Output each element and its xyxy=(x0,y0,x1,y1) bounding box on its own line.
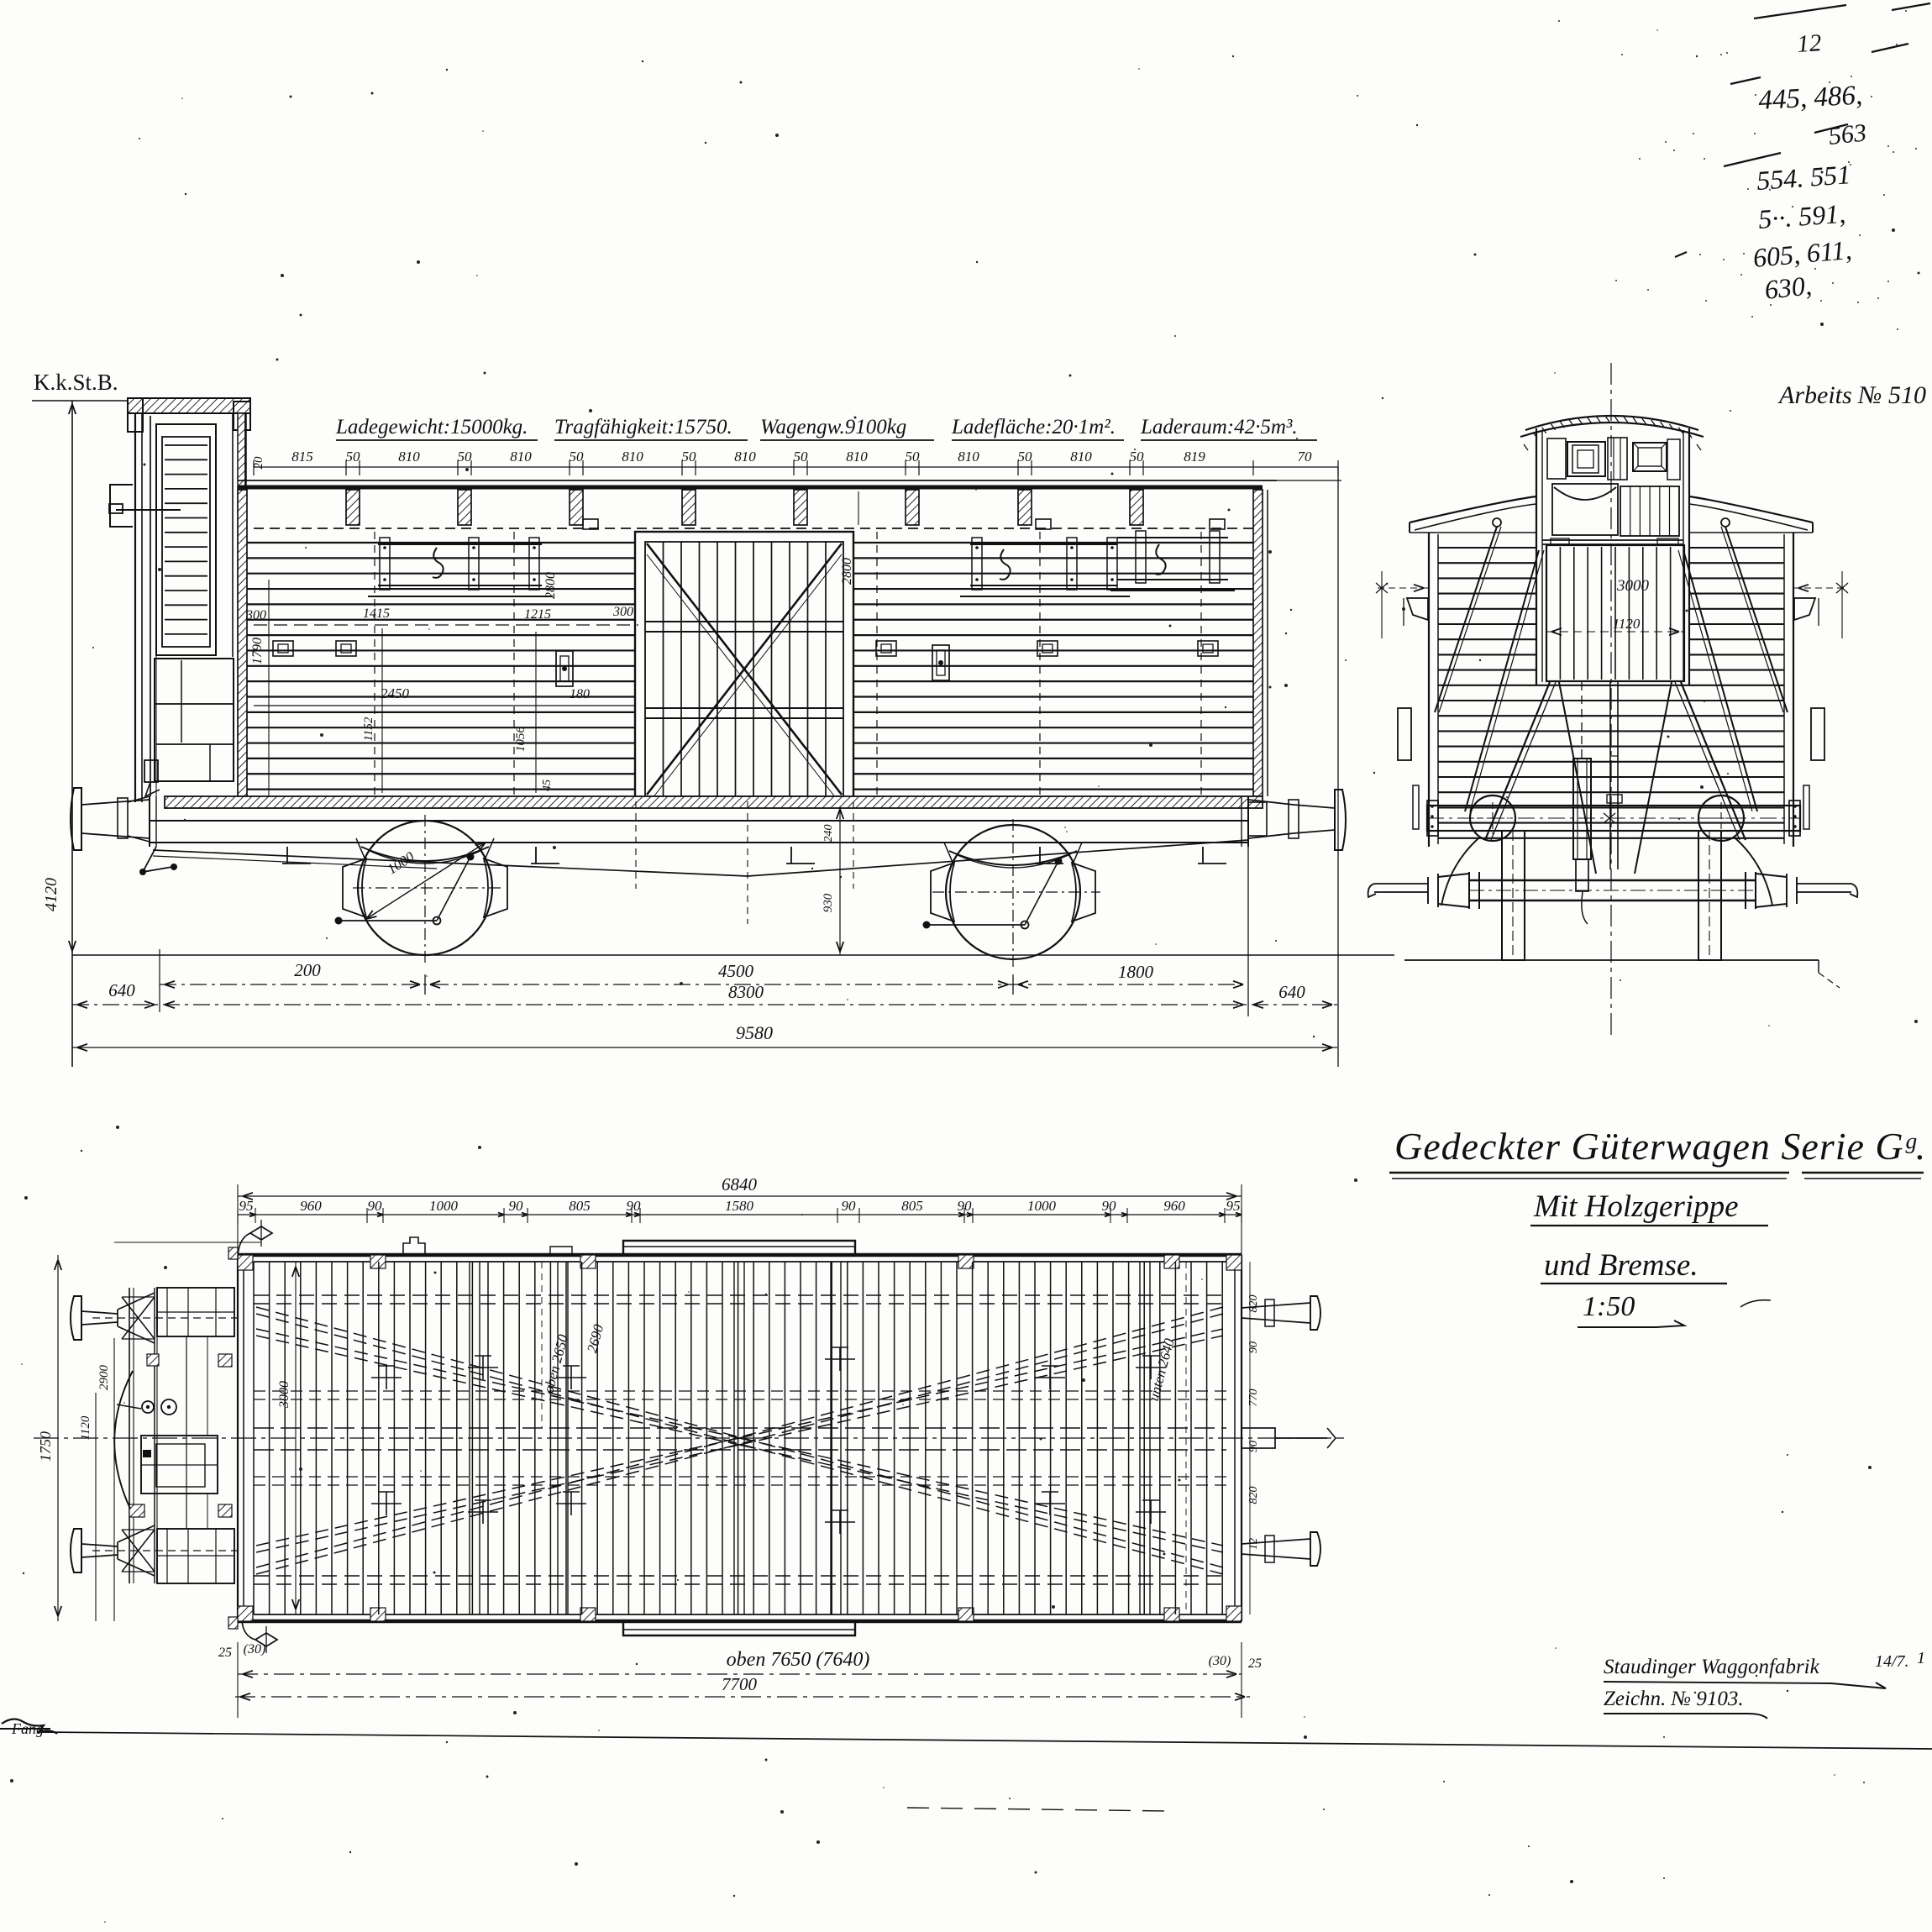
svg-text:300: 300 xyxy=(612,605,633,619)
svg-text:K.k.St.B.: K.k.St.B. xyxy=(34,370,118,395)
svg-text:50: 50 xyxy=(906,449,921,465)
svg-text:7700: 7700 xyxy=(722,1674,758,1694)
svg-text:180: 180 xyxy=(570,687,590,701)
svg-text:1152: 1152 xyxy=(362,717,375,741)
svg-text:95: 95 xyxy=(1226,1198,1241,1214)
svg-text:2800: 2800 xyxy=(543,572,558,599)
svg-text:300: 300 xyxy=(245,608,266,622)
svg-text:1: 1 xyxy=(1917,1649,1925,1667)
svg-text:2900: 2900 xyxy=(97,1365,111,1391)
svg-text:3000: 3000 xyxy=(1616,577,1650,595)
svg-text:90: 90 xyxy=(842,1198,857,1214)
svg-text:Wagengw.9100kg: Wagengw.9100kg xyxy=(760,416,906,438)
svg-text:810: 810 xyxy=(958,449,979,465)
svg-text:1:50: 1:50 xyxy=(1583,1291,1635,1322)
svg-text:3000: 3000 xyxy=(277,1381,291,1409)
svg-text:1750: 1750 xyxy=(37,1431,54,1462)
svg-text:8300: 8300 xyxy=(728,982,764,1002)
svg-text:810: 810 xyxy=(1070,449,1092,465)
svg-text:200: 200 xyxy=(294,960,321,980)
svg-text:1215: 1215 xyxy=(524,607,551,622)
svg-text:Ladefläche:20·1m².: Ladefläche:20·1m². xyxy=(951,416,1116,438)
svg-text:90: 90 xyxy=(627,1198,642,1214)
svg-text:Tragfähigkeit:15750.: Tragfähigkeit:15750. xyxy=(554,416,732,438)
svg-text:und Bremse.: und Bremse. xyxy=(1544,1248,1698,1283)
svg-text:4120: 4120 xyxy=(42,878,60,911)
svg-text:50: 50 xyxy=(1130,449,1145,465)
svg-text:4500: 4500 xyxy=(718,961,754,981)
svg-text:1000: 1000 xyxy=(1027,1198,1057,1214)
svg-text:12: 12 xyxy=(1247,1538,1260,1550)
svg-text:50: 50 xyxy=(794,449,809,465)
svg-text:1120: 1120 xyxy=(1613,616,1641,632)
svg-text:810: 810 xyxy=(622,449,643,465)
svg-text:Ladegewicht:15000kg.: Ladegewicht:15000kg. xyxy=(335,416,528,438)
svg-text:90: 90 xyxy=(1102,1198,1117,1214)
svg-text:810: 810 xyxy=(510,449,532,465)
svg-text:25: 25 xyxy=(218,1646,232,1660)
svg-text:6840: 6840 xyxy=(722,1174,758,1194)
svg-text:Arbeits № 510: Arbeits № 510 xyxy=(1777,381,1926,409)
svg-text:810: 810 xyxy=(734,449,756,465)
svg-text:45: 45 xyxy=(541,780,554,791)
svg-text:oben 7650 (7640): oben 7650 (7640) xyxy=(727,1649,870,1671)
svg-text:9580: 9580 xyxy=(736,1022,773,1043)
svg-text:90: 90 xyxy=(509,1198,524,1214)
svg-text:930: 930 xyxy=(822,893,835,912)
svg-text:445, 486,: 445, 486, xyxy=(1758,81,1863,116)
svg-text:810: 810 xyxy=(398,449,420,465)
svg-text:5··. 591,: 5··. 591, xyxy=(1757,198,1846,234)
svg-text:50: 50 xyxy=(1018,449,1033,465)
svg-text:2800: 2800 xyxy=(840,558,854,585)
svg-text:50: 50 xyxy=(570,449,585,465)
svg-text:819: 819 xyxy=(1184,449,1205,465)
svg-text:1056: 1056 xyxy=(514,727,528,753)
svg-text:25: 25 xyxy=(1248,1656,1262,1671)
svg-text:Mit Holzgerippe: Mit Holzgerippe xyxy=(1533,1189,1739,1224)
svg-text:(30): (30) xyxy=(1209,1654,1231,1668)
svg-text:240: 240 xyxy=(822,825,835,843)
svg-text:1415: 1415 xyxy=(363,606,390,621)
svg-text:2450: 2450 xyxy=(381,685,410,701)
svg-text:1120: 1120 xyxy=(79,1415,92,1440)
svg-text:805: 805 xyxy=(569,1198,591,1214)
svg-text:805: 805 xyxy=(901,1198,923,1214)
svg-text:1790: 1790 xyxy=(250,638,265,664)
svg-text:960: 960 xyxy=(1163,1198,1185,1214)
svg-text:Laderaum:42·5m³.: Laderaum:42·5m³. xyxy=(1140,416,1298,438)
svg-text:820: 820 xyxy=(1247,1295,1260,1313)
svg-text:50: 50 xyxy=(346,449,361,465)
svg-text:50: 50 xyxy=(682,449,697,465)
svg-text:1000: 1000 xyxy=(429,1198,459,1214)
svg-text:95: 95 xyxy=(239,1198,254,1214)
svg-text:640: 640 xyxy=(1278,982,1305,1002)
svg-text:12: 12 xyxy=(1796,29,1822,58)
svg-text:90: 90 xyxy=(368,1198,383,1214)
svg-text:(30): (30) xyxy=(244,1642,266,1656)
svg-text:960: 960 xyxy=(300,1198,322,1214)
svg-text:1800: 1800 xyxy=(1118,962,1154,982)
svg-text:Gedeckter Güterwagen Serie Gᵍ.: Gedeckter Güterwagen Serie Gᵍ. xyxy=(1394,1125,1926,1168)
svg-text:1580: 1580 xyxy=(725,1198,754,1214)
svg-text:90: 90 xyxy=(1247,1441,1260,1452)
svg-text:Staudinger Waggonfabrik: Staudinger Waggonfabrik xyxy=(1604,1656,1820,1678)
svg-text:640: 640 xyxy=(108,980,135,1000)
svg-text:820: 820 xyxy=(1247,1487,1260,1504)
svg-text:90: 90 xyxy=(1247,1341,1260,1353)
svg-text:810: 810 xyxy=(846,449,868,465)
svg-text:50: 50 xyxy=(458,449,473,465)
svg-text:70: 70 xyxy=(1298,449,1313,465)
svg-text:630,: 630, xyxy=(1763,270,1813,305)
svg-text:770: 770 xyxy=(1247,1389,1260,1407)
svg-text:14/7.: 14/7. xyxy=(1875,1652,1909,1671)
svg-text:815: 815 xyxy=(291,449,313,465)
svg-text:Zeichn. № 9103.: Zeichn. № 9103. xyxy=(1604,1688,1744,1710)
